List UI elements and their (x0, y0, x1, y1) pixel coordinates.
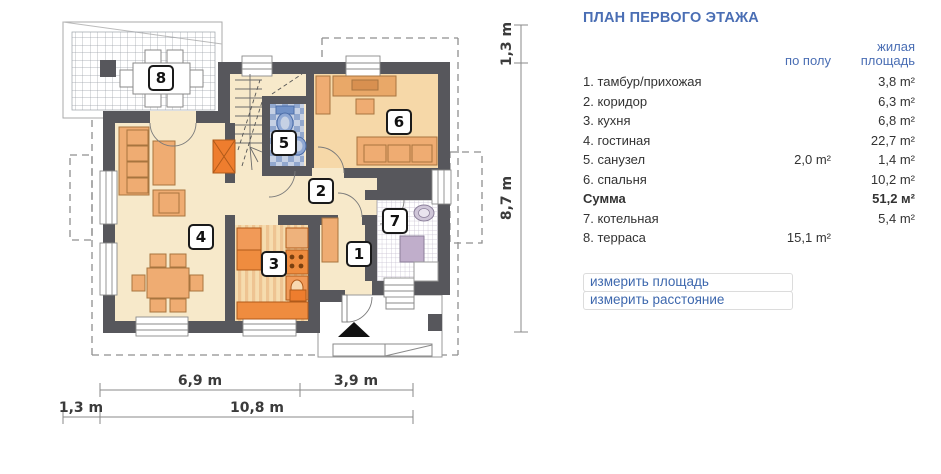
svg-text:7: 7 (390, 212, 400, 230)
window (243, 317, 296, 336)
measure-tools: измерить площадь измерить расстояние (583, 273, 793, 310)
window (100, 243, 117, 295)
floor-plan-drawing: 1 2 3 4 5 6 7 8 1,3 m (0, 0, 560, 474)
dim-right-small: 1,3 m (499, 22, 515, 66)
bedroom-sofa (357, 137, 437, 165)
page-title: ПЛАН ПЕРВОГО ЭТАЖА (583, 10, 915, 26)
window (432, 170, 451, 204)
floor-plan-page: 1 2 3 4 5 6 7 8 1,3 m (0, 0, 941, 474)
kitchen-counter (237, 302, 308, 319)
stove (286, 250, 308, 274)
terrace (63, 22, 222, 118)
badge-7: 7 (383, 209, 407, 233)
badge-6: 6 (387, 110, 411, 134)
table-row: 8. терраса15,1 m² (583, 228, 915, 248)
room-list: 1. тамбур/прихожая3,8 m²2. коридор6,3 m²… (583, 72, 915, 248)
hall-wardrobe (322, 218, 338, 262)
grill (100, 60, 116, 77)
dim-right-big: 8,7 m (499, 176, 515, 220)
svg-text:4: 4 (196, 228, 206, 246)
svg-text:5: 5 (279, 134, 289, 152)
table-row: 2. коридор6,3 m² (583, 92, 915, 112)
dim-108: 10,8 m (230, 400, 284, 416)
dim-39: 3,9 m (334, 373, 378, 389)
table-row: 1. тамбур/прихожая3,8 m² (583, 72, 915, 92)
dim-69: 6,9 m (178, 373, 222, 389)
badge-4: 4 (189, 225, 213, 249)
entrance-porch (318, 295, 442, 357)
column-floor: по полу (749, 54, 831, 68)
badge-8: 8 (149, 66, 173, 90)
dim-13: 1,3 m (59, 400, 103, 416)
measure-area-link[interactable]: измерить площадь (583, 273, 793, 292)
porch-step (333, 344, 385, 356)
window (136, 317, 188, 336)
window (384, 278, 414, 297)
badge-5: 5 (272, 131, 296, 155)
table-row: 4. гостиная22,7 m² (583, 131, 915, 151)
svg-text:2: 2 (316, 182, 326, 200)
window (242, 56, 272, 76)
area-table-panel: ПЛАН ПЕРВОГО ЭТАЖА по полу жилая площадь… (583, 10, 915, 310)
window (346, 56, 380, 76)
table-row: 3. кухня6,8 m² (583, 111, 915, 131)
table-row: 5. санузел2,0 m²1,4 m² (583, 150, 915, 170)
table-row: 7. котельная5,4 m² (583, 209, 915, 229)
coffee-table (153, 141, 175, 185)
svg-text:8: 8 (156, 69, 166, 87)
boiler (400, 236, 424, 262)
porch-pillar (428, 314, 442, 331)
window (100, 171, 117, 224)
table-row: Сумма51,2 м² (583, 189, 915, 209)
toilet (276, 106, 294, 133)
svg-text:3: 3 (269, 255, 279, 273)
wardrobe (316, 76, 330, 114)
svg-text:1: 1 (354, 245, 364, 263)
svg-text:6: 6 (394, 113, 404, 131)
fireplace (213, 140, 235, 173)
badge-1: 1 (347, 242, 371, 266)
column-living-area: жилая площадь (831, 40, 915, 68)
badge-3: 3 (262, 252, 286, 276)
measure-distance-link[interactable]: измерить расстояние (583, 291, 793, 310)
table-header: по полу жилая площадь (583, 40, 915, 68)
table-row: 6. спальня10,2 m² (583, 170, 915, 190)
terrace-door-opening (150, 111, 196, 123)
desk-chair (356, 99, 374, 114)
badge-2: 2 (309, 179, 333, 203)
armchair (153, 190, 185, 216)
sofa (119, 127, 149, 195)
